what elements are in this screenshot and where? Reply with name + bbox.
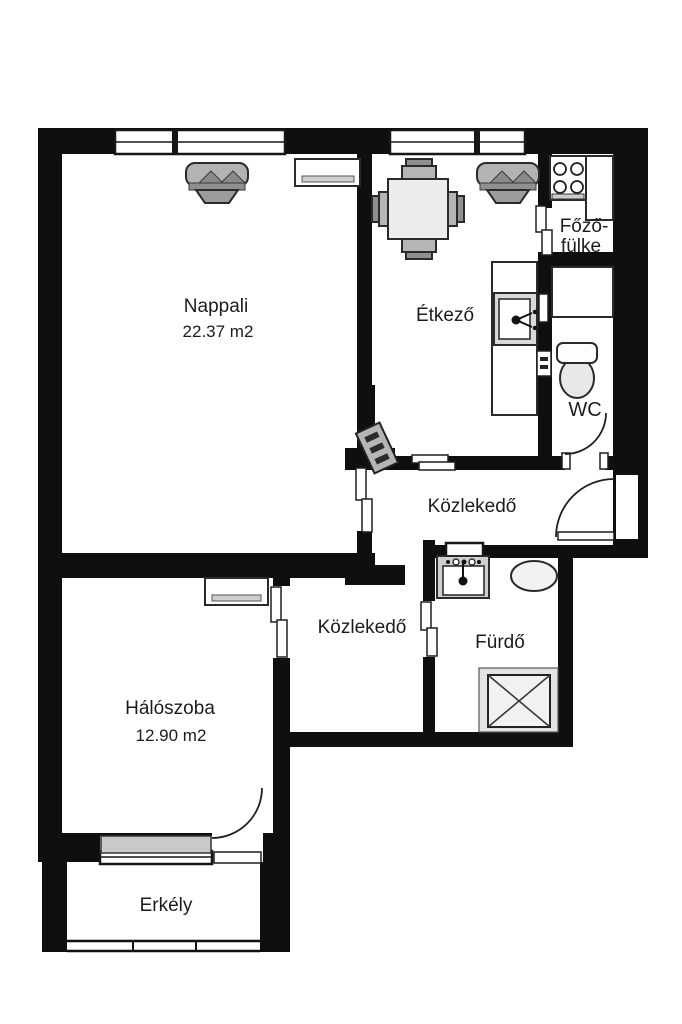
floor-plan: Nappali 22.37 m2 Étkező Főző- fülke WC K… <box>0 0 682 1024</box>
balcony-door-threshold <box>214 852 261 863</box>
stove-icon <box>550 156 586 200</box>
kitchen-counter <box>586 156 613 220</box>
dining-room-window <box>390 130 525 154</box>
room-label-kozlekedo-also: Közlekedő <box>318 617 407 638</box>
room-label-haloszoba: Hálószoba <box>125 698 215 719</box>
sideboard-icon <box>205 578 268 605</box>
shower-icon <box>479 668 558 732</box>
living-hall-doorway <box>356 468 366 500</box>
toilet-icon <box>557 343 597 398</box>
radiator-icon <box>101 836 211 853</box>
room-label-furdo: Fürdő <box>475 632 525 653</box>
room-label-kozlekedo-felso: Közlekedő <box>428 496 517 517</box>
room-label-fozofulke: Főző- <box>560 216 609 237</box>
balcony-railing <box>67 941 260 951</box>
entrance-door-leaf <box>558 532 614 540</box>
wall-niche <box>539 294 548 322</box>
kitchen-doorway <box>536 206 546 232</box>
room-label-fozofulke2: fülke <box>561 236 601 257</box>
room-area-nappali: 22.37 m2 <box>183 322 254 341</box>
flush-panel-icon <box>537 351 551 376</box>
laundry-basket-icon <box>511 561 557 591</box>
room-label-wc: WC <box>568 399 601 421</box>
wc-cabinet <box>552 267 613 317</box>
door-arcs <box>212 413 614 838</box>
living-room-window <box>115 130 285 154</box>
floor-plan-page: Nappali 22.37 m2 Étkező Főző- fülke WC K… <box>0 0 682 1024</box>
dining-table-icon <box>372 159 464 259</box>
wc-door-jamb <box>562 453 570 469</box>
balcony-door-arc <box>212 788 262 838</box>
shelf-icon <box>295 159 360 186</box>
room-label-etkezo: Étkező <box>416 305 474 326</box>
room-area-haloszoba: 12.90 m2 <box>136 726 207 745</box>
room-label-nappali: Nappali <box>184 296 248 317</box>
bathroom-door <box>421 602 431 630</box>
ceiling-lamp-icon <box>186 163 248 203</box>
ceiling-lamp-icon <box>477 163 539 203</box>
entrance-door-arc <box>556 479 614 537</box>
washbasin-icon <box>437 556 489 598</box>
kitchen-sink-icon <box>492 262 537 415</box>
walls <box>38 128 648 952</box>
room-label-erkely: Erkély <box>140 895 193 916</box>
bedroom-door <box>271 587 281 622</box>
